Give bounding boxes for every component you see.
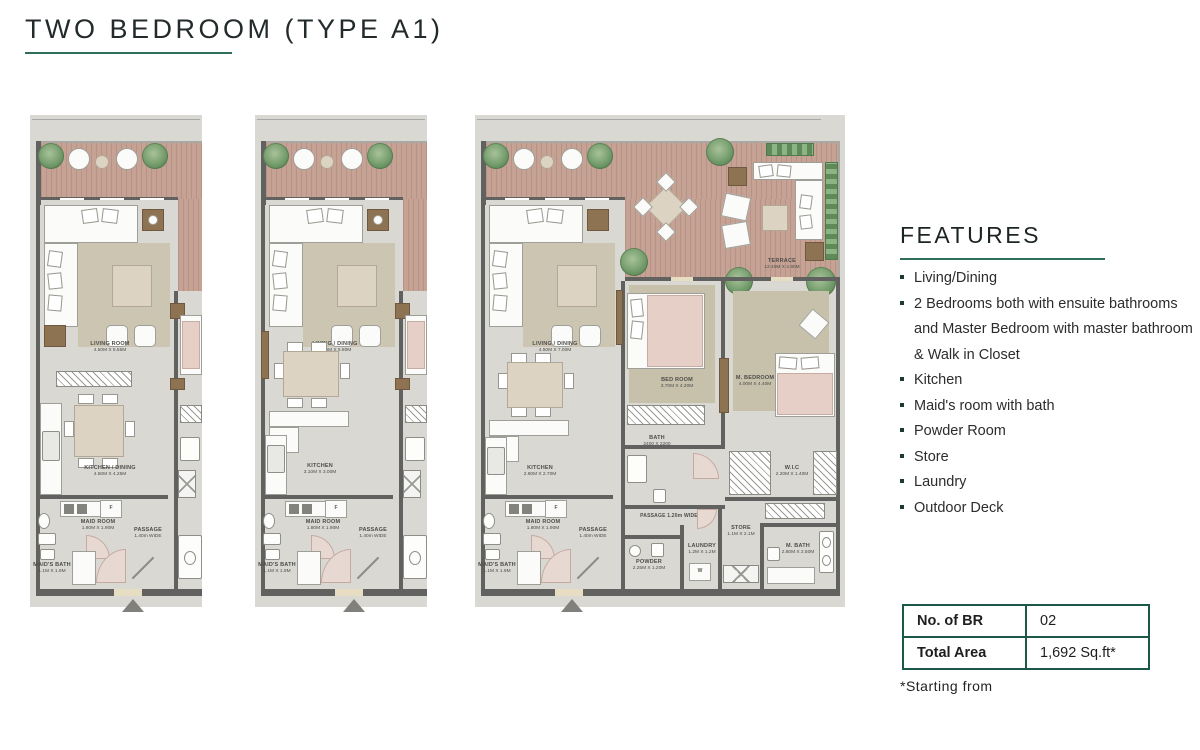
dining-table — [74, 405, 124, 457]
vanity — [405, 437, 425, 461]
fridge-label: F — [325, 505, 347, 511]
dining-chair — [287, 398, 303, 408]
dining-chair — [78, 394, 94, 404]
kitchen-label: KITCHEN / DINING4.50M X 4.25M — [55, 465, 165, 478]
terrace-chair — [293, 148, 315, 170]
setback-line — [32, 119, 200, 120]
sofa-pillow — [758, 164, 774, 178]
dining-chair — [311, 398, 327, 408]
entry-door — [114, 589, 142, 596]
terrace-chair — [561, 148, 583, 170]
wall — [625, 277, 840, 281]
fridge-label: F — [545, 505, 567, 511]
sofa-pillow — [492, 294, 507, 311]
glass-gap — [545, 198, 569, 200]
features-heading: FEATURES — [900, 222, 1041, 249]
sofa-pillow — [546, 208, 564, 224]
plant-icon — [142, 143, 168, 169]
summary-label: Total Area — [903, 637, 1026, 669]
outdoor-lounge-chair — [721, 193, 751, 222]
passage-label: PASSAGE1.40m WIDE — [128, 527, 168, 540]
dining-table — [283, 351, 339, 397]
door-swing — [697, 509, 717, 529]
sofa-pillow — [799, 194, 813, 210]
sink — [289, 504, 299, 514]
wardrobe — [729, 451, 771, 495]
wardrobe — [813, 451, 837, 495]
maid-bath-label: MAID'S BATH1.1M X 1.9M — [257, 562, 297, 575]
sofa-pillow — [47, 294, 62, 311]
sofa-pillow — [776, 164, 791, 177]
plant-icon — [706, 138, 734, 166]
wall — [40, 495, 168, 499]
wic-label: W.I.C2.20M X 1.40M — [771, 465, 813, 478]
terrace-edge — [838, 141, 840, 281]
starting-from-note: *Starting from — [900, 678, 993, 694]
terrace-label: TERRACE12.40M X 4.90M — [752, 258, 812, 271]
maid-bed — [517, 551, 541, 585]
wall — [625, 535, 683, 539]
floorplan-2: LIVING / DINING4.50M X 6.80M KITCHEN3.10… — [255, 115, 427, 607]
sink — [522, 504, 532, 514]
toilet — [265, 549, 280, 560]
glass-gap — [365, 198, 389, 200]
wall — [265, 495, 393, 499]
toilet — [651, 543, 664, 557]
planter-box — [728, 167, 747, 186]
floorplan-3: TERRACE12.40M X 4.90M — [475, 115, 845, 607]
sink — [483, 513, 495, 529]
closet — [180, 405, 202, 423]
glass-gap — [505, 198, 529, 200]
laundry-label: LAUNDRY1.2M X 1.2M — [685, 543, 719, 556]
wall — [760, 523, 764, 589]
terrace-chair — [341, 148, 363, 170]
sofa-pillow — [272, 250, 288, 268]
bed-blanket — [647, 295, 703, 367]
dining-chair — [511, 407, 527, 417]
features-underline — [900, 258, 1105, 260]
coffee-table — [557, 265, 597, 307]
terrace-chair — [513, 148, 535, 170]
maid-room-label: MAID ROOM1.80M X 1.90M — [513, 519, 573, 532]
bathtub — [767, 567, 815, 584]
dining-chair — [340, 363, 350, 379]
side-table-decor — [373, 215, 383, 225]
glass-gap — [325, 198, 349, 200]
plant-icon — [620, 248, 648, 276]
powder-label: POWDER2.25M X 1.20M — [627, 559, 671, 572]
page-title: TWO BEDROOM (TYPE A1) — [25, 14, 444, 45]
tv-cabinet — [616, 290, 623, 345]
passage-label: PASSAGE1.40m WIDE — [573, 527, 613, 540]
toilet — [40, 549, 55, 560]
sofa-pillow — [47, 250, 63, 268]
stove — [487, 447, 505, 475]
outdoor-lounge-chair — [721, 221, 751, 249]
sink — [409, 551, 421, 565]
glass-gap — [60, 198, 84, 200]
sink — [302, 504, 312, 514]
sofa-pillow — [492, 272, 508, 289]
sink — [38, 513, 50, 529]
sofa-pillow — [47, 272, 63, 289]
terrace-door — [671, 277, 693, 281]
terrace-table — [320, 155, 334, 169]
living-room-label: LIVING ROOM4.50M X 5.55M — [55, 341, 165, 354]
tv-unit — [56, 371, 132, 387]
feature-item: Laundry — [900, 470, 1200, 496]
side-table-decor — [148, 215, 158, 225]
dining-chair — [564, 373, 574, 389]
sink — [822, 537, 831, 548]
glass-gap — [100, 198, 124, 200]
setback-line — [257, 119, 425, 120]
entry-arrow — [122, 599, 144, 612]
bench — [723, 565, 759, 583]
vanity — [180, 437, 200, 461]
feature-item: Outdoor Deck — [900, 496, 1200, 522]
planter-hedge — [766, 143, 814, 156]
plant-icon — [367, 143, 393, 169]
bath-label: BATH2400 X 2200 — [635, 435, 679, 448]
terrace-chair — [116, 148, 138, 170]
terrace-door — [771, 277, 793, 281]
door-leaf — [132, 557, 155, 580]
maid-room-label: MAID ROOM1.80M X 1.90M — [68, 519, 128, 532]
glass-gap — [140, 198, 164, 200]
maid-bath-label: MAID'S BATH1.1M X 1.9M — [477, 562, 517, 575]
feature-item: Store — [900, 445, 1200, 471]
sink — [822, 555, 831, 566]
kitchen-label: KITCHEN3.10M X 3.00M — [275, 463, 365, 476]
fridge-label: F — [100, 505, 122, 511]
coffee-table — [112, 265, 152, 307]
maid-bed — [72, 551, 96, 585]
dining-chair — [125, 421, 135, 437]
sofa-pillow — [492, 250, 508, 268]
wall — [680, 525, 684, 589]
coffee-table — [337, 265, 377, 307]
wardrobe — [765, 503, 825, 519]
sofa-pillow — [101, 208, 119, 224]
sofa-pillow — [272, 272, 288, 289]
wall — [760, 523, 840, 527]
maid-bath-label: MAID'S BATH1.1M X 1.9M — [32, 562, 72, 575]
sink — [77, 504, 87, 514]
summary-table: No. of BR 02 Total Area 1,692 Sq.ft* — [902, 604, 1150, 670]
wall — [725, 497, 840, 501]
wall — [485, 495, 613, 499]
sofa-pillow — [326, 208, 344, 224]
toilet — [485, 549, 500, 560]
wall — [836, 281, 840, 589]
bed-blanket — [407, 321, 425, 369]
sofa-pillow — [306, 208, 324, 224]
glass-gap — [285, 198, 309, 200]
side-table — [587, 209, 609, 231]
vanity — [38, 533, 56, 545]
setback-line — [477, 119, 821, 120]
bed-blanket — [777, 373, 833, 415]
sofa-pillow — [526, 208, 544, 224]
shower — [403, 470, 421, 498]
terrace-table — [95, 155, 109, 169]
bed-pillow — [630, 298, 644, 317]
door-swing — [693, 453, 719, 479]
cabinet — [261, 331, 269, 379]
outdoor-sofa — [795, 180, 823, 240]
glass-gap — [585, 198, 609, 200]
entry-door — [555, 589, 583, 596]
stove — [267, 445, 285, 473]
plant-icon — [587, 143, 613, 169]
summary-value: 02 — [1026, 605, 1149, 637]
kitchen-island — [489, 420, 569, 436]
dining-table — [507, 362, 563, 408]
kitchen-label: KITCHEN2.90M X 2.70M — [495, 465, 585, 478]
entry-arrow — [343, 599, 365, 612]
feature-item: Kitchen — [900, 368, 1200, 394]
door-leaf — [357, 557, 380, 580]
planter-hedge — [825, 162, 838, 260]
toilet — [767, 547, 780, 561]
store-label: STORE1.1M X 2.1M — [723, 525, 759, 538]
sink — [509, 504, 519, 514]
dining-chair — [64, 421, 74, 437]
feature-item: 2 Bedrooms both with ensuite bathrooms a… — [900, 292, 1200, 369]
features-list: Living/Dining 2 Bedrooms both with ensui… — [900, 266, 1200, 521]
wall — [481, 589, 840, 596]
entry-door — [335, 589, 363, 596]
terrace-edge — [36, 141, 202, 143]
toilet — [653, 489, 666, 503]
bed-pillow — [801, 356, 820, 370]
terrace-edge — [261, 141, 427, 143]
sofa-pillow — [81, 208, 99, 224]
wardrobe — [395, 378, 410, 390]
sofa-pillow — [799, 214, 813, 229]
sink — [184, 551, 196, 565]
feature-item: Powder Room — [900, 419, 1200, 445]
terrace-deck-side — [403, 199, 427, 291]
brochure-page: TWO BEDROOM (TYPE A1) — [0, 0, 1200, 750]
outdoor-coffee-table — [762, 205, 788, 231]
sink — [629, 545, 641, 557]
vanity — [263, 533, 281, 545]
table-row: Total Area 1,692 Sq.ft* — [903, 637, 1149, 669]
washer-label: W — [689, 568, 711, 574]
vanity — [627, 455, 647, 483]
passage-label: PASSAGE1.40m WIDE — [353, 527, 393, 540]
feature-item: Maid's room with bath — [900, 394, 1200, 420]
plant-icon — [483, 143, 509, 169]
door-leaf — [577, 557, 600, 580]
wardrobe — [170, 378, 185, 390]
dining-chair — [102, 394, 118, 404]
maid-bed — [297, 551, 321, 585]
vanity — [483, 533, 501, 545]
sofa-pillow — [272, 294, 287, 311]
bed-pillow — [779, 356, 798, 370]
title-underline — [25, 52, 232, 54]
master-bedroom-label: M. BEDROOM4.00M X 4.40M — [725, 375, 785, 388]
entry-arrow — [561, 599, 583, 612]
closet — [405, 405, 427, 423]
bed-blanket — [182, 321, 200, 369]
table-row: No. of BR 02 — [903, 605, 1149, 637]
dining-chair — [535, 407, 551, 417]
terrace-deck-side — [178, 199, 202, 291]
floorplan-1: LIVING ROOM4.50M X 5.55M KITCHEN / DININ… — [30, 115, 202, 607]
sink — [64, 504, 74, 514]
sink — [263, 513, 275, 529]
plant-icon — [38, 143, 64, 169]
bedroom-label: BED ROOM3.70M X 4.20M — [647, 377, 707, 390]
shower — [178, 470, 196, 498]
plant-icon — [263, 143, 289, 169]
maid-room-label: MAID ROOM1.80M X 1.90M — [293, 519, 353, 532]
kitchen-island — [269, 411, 349, 427]
feature-item: Living/Dining — [900, 266, 1200, 292]
terrace-chair — [68, 148, 90, 170]
summary-label: No. of BR — [903, 605, 1026, 637]
stove — [42, 431, 60, 461]
bed-pillow — [630, 320, 644, 339]
closet — [627, 405, 705, 425]
terrace-table — [540, 155, 554, 169]
summary-value: 1,692 Sq.ft* — [1026, 637, 1149, 669]
